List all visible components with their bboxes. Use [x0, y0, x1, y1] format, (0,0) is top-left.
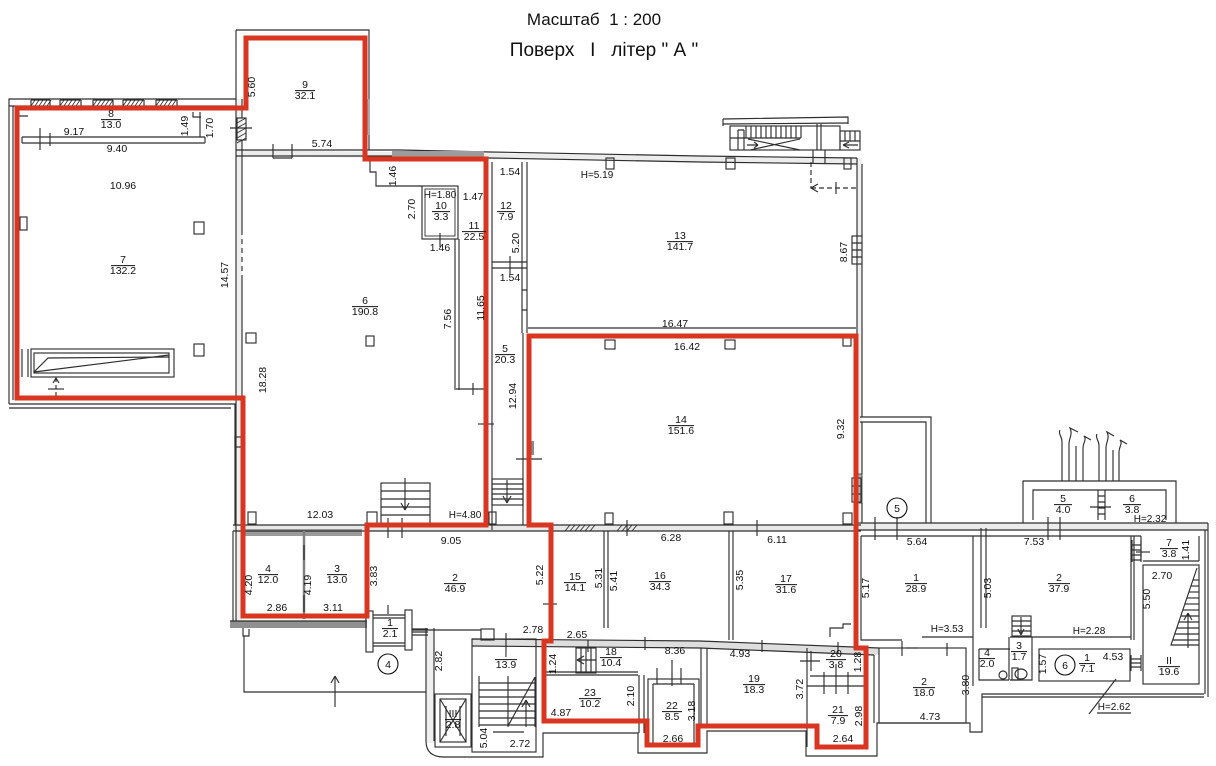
svg-text:13.9: 13.9	[496, 659, 517, 671]
svg-text:H=2.32: H=2.32	[1134, 514, 1167, 525]
svg-text:H=3.53: H=3.53	[931, 624, 964, 635]
svg-text:7.9: 7.9	[499, 211, 514, 223]
svg-text:46.9: 46.9	[445, 583, 466, 595]
svg-text:2.64: 2.64	[833, 733, 854, 745]
svg-text:21: 21	[832, 704, 844, 716]
svg-text:7.56: 7.56	[442, 309, 454, 330]
svg-text:6.11: 6.11	[767, 534, 787, 546]
svg-text:3: 3	[334, 563, 340, 575]
svg-text:II: II	[1166, 655, 1172, 667]
svg-text:5: 5	[1060, 493, 1066, 505]
svg-text:5.41: 5.41	[608, 571, 620, 592]
svg-text:9: 9	[302, 79, 308, 91]
svg-text:2.0: 2.0	[980, 658, 995, 670]
svg-text:2.70: 2.70	[1152, 570, 1173, 582]
svg-text:18.0: 18.0	[914, 687, 935, 699]
svg-text:H=5.19: H=5.19	[581, 170, 614, 181]
svg-text:5.60: 5.60	[246, 77, 258, 98]
svg-text:14.1: 14.1	[565, 582, 586, 594]
svg-text:141.7: 141.7	[667, 241, 693, 253]
svg-text:1.54: 1.54	[500, 272, 521, 284]
svg-text:9.40: 9.40	[107, 143, 128, 155]
svg-text:16.42: 16.42	[674, 341, 700, 353]
svg-text:2.1: 2.1	[383, 628, 398, 640]
svg-text:4: 4	[265, 563, 271, 575]
svg-text:32.1: 32.1	[295, 90, 316, 102]
svg-text:28.9: 28.9	[906, 583, 927, 595]
svg-text:19: 19	[748, 673, 760, 685]
svg-text:6: 6	[1129, 493, 1135, 505]
svg-text:5: 5	[502, 343, 508, 355]
svg-text:4.53: 4.53	[1103, 651, 1124, 663]
svg-text:3.11: 3.11	[323, 602, 343, 614]
svg-text:10.4: 10.4	[601, 657, 622, 669]
svg-text:5.22: 5.22	[534, 565, 546, 586]
svg-text:18.3: 18.3	[744, 684, 765, 696]
svg-text:3.8: 3.8	[1162, 548, 1177, 560]
svg-text:1.41: 1.41	[1180, 540, 1192, 561]
svg-text:3.3: 3.3	[434, 211, 449, 223]
svg-text:14: 14	[675, 414, 687, 426]
svg-text:2.65: 2.65	[567, 629, 588, 641]
svg-text:12.03: 12.03	[307, 509, 333, 521]
svg-text:H=2.28: H=2.28	[1073, 626, 1106, 637]
svg-text:190.8: 190.8	[352, 306, 378, 318]
svg-text:3.80: 3.80	[960, 675, 972, 696]
svg-text:4.73: 4.73	[920, 711, 941, 723]
svg-text:8.5: 8.5	[665, 711, 680, 723]
svg-text:11.65: 11.65	[475, 295, 487, 321]
svg-text:1.28: 1.28	[852, 652, 864, 673]
svg-text:2.10: 2.10	[625, 686, 637, 707]
svg-text:31.6: 31.6	[776, 584, 797, 596]
svg-text:2.66: 2.66	[663, 733, 684, 745]
svg-text:6: 6	[1062, 660, 1068, 672]
svg-text:2.78: 2.78	[523, 624, 544, 636]
svg-text:9.05: 9.05	[441, 535, 462, 547]
svg-text:2.86: 2.86	[267, 602, 288, 614]
svg-text:1.57: 1.57	[1037, 654, 1049, 675]
svg-text:6: 6	[362, 295, 368, 307]
svg-text:17: 17	[780, 573, 792, 585]
svg-text:1: 1	[913, 572, 919, 584]
svg-text:9.32: 9.32	[835, 419, 847, 440]
svg-text:1.49: 1.49	[179, 116, 191, 137]
svg-text:20.3: 20.3	[495, 354, 516, 366]
svg-text:2.98: 2.98	[853, 706, 865, 727]
svg-text:23: 23	[584, 687, 596, 699]
svg-text:2: 2	[1056, 572, 1062, 584]
svg-text:2.72: 2.72	[510, 738, 531, 750]
svg-text:Масштаб 1 : 200: Масштаб 1 : 200	[527, 10, 661, 29]
svg-text:2.8: 2.8	[446, 719, 461, 731]
svg-text:1.46: 1.46	[430, 242, 451, 254]
svg-text:1.24: 1.24	[547, 654, 559, 675]
svg-text:1: 1	[1084, 652, 1090, 664]
svg-text:8.36: 8.36	[665, 645, 686, 657]
svg-text:37.9: 37.9	[1049, 583, 1070, 595]
svg-text:6.28: 6.28	[661, 532, 682, 544]
svg-text:3.72: 3.72	[794, 679, 806, 700]
svg-text:4.0: 4.0	[1056, 504, 1071, 516]
svg-text:8.67: 8.67	[838, 242, 850, 263]
svg-text:5.17: 5.17	[860, 578, 872, 599]
svg-text:5.31: 5.31	[593, 568, 605, 589]
svg-text:1: 1	[387, 617, 393, 629]
svg-text:1.7: 1.7	[1012, 651, 1027, 663]
svg-text:H=4.80: H=4.80	[449, 510, 482, 521]
svg-text:I: I	[505, 648, 508, 660]
svg-text:14.57: 14.57	[219, 262, 231, 288]
svg-text:4.87: 4.87	[551, 707, 572, 719]
svg-text:7.53: 7.53	[1024, 536, 1045, 548]
svg-text:22: 22	[666, 700, 678, 712]
svg-text:2: 2	[921, 676, 927, 688]
svg-text:4.93: 4.93	[730, 648, 751, 660]
svg-text:18: 18	[605, 646, 617, 658]
svg-text:13.0: 13.0	[101, 119, 122, 131]
svg-text:12.0: 12.0	[258, 574, 279, 586]
svg-text:12: 12	[500, 200, 512, 212]
svg-text:5.20: 5.20	[510, 233, 522, 254]
svg-text:132.2: 132.2	[110, 265, 136, 277]
svg-text:15: 15	[569, 571, 581, 583]
svg-text:III: III	[449, 708, 458, 720]
svg-text:5.04: 5.04	[478, 728, 490, 749]
svg-text:5.35: 5.35	[734, 570, 746, 591]
svg-text:18.28: 18.28	[257, 367, 269, 393]
svg-text:7: 7	[1166, 537, 1172, 549]
svg-text:10.96: 10.96	[110, 180, 136, 192]
svg-text:3.18: 3.18	[686, 701, 698, 722]
svg-text:1.47: 1.47	[463, 191, 484, 203]
svg-text:3.83: 3.83	[368, 566, 380, 587]
svg-text:13.0: 13.0	[327, 574, 348, 586]
svg-text:5: 5	[894, 503, 900, 515]
svg-text:34.3: 34.3	[650, 581, 671, 593]
svg-text:Поверх І літер " А ": Поверх І літер " А "	[510, 40, 698, 61]
svg-text:16: 16	[654, 570, 666, 582]
svg-text:20: 20	[830, 648, 842, 660]
svg-text:5.64: 5.64	[907, 536, 928, 548]
svg-text:16.47: 16.47	[662, 318, 688, 330]
svg-text:10.2: 10.2	[580, 698, 601, 710]
svg-text:5.03: 5.03	[982, 578, 994, 599]
svg-text:H=2.62: H=2.62	[1098, 702, 1131, 713]
svg-text:151.6: 151.6	[668, 425, 694, 437]
svg-text:22.5: 22.5	[464, 231, 485, 243]
svg-text:2.70: 2.70	[406, 199, 418, 220]
svg-text:1.46: 1.46	[387, 166, 399, 187]
svg-text:4.19: 4.19	[302, 575, 314, 596]
svg-text:4: 4	[385, 659, 391, 671]
svg-text:9.17: 9.17	[64, 126, 85, 138]
svg-text:1.54: 1.54	[500, 166, 521, 178]
svg-text:5.50: 5.50	[1141, 589, 1153, 610]
svg-text:5.74: 5.74	[312, 138, 333, 150]
svg-text:12.94: 12.94	[507, 383, 519, 409]
svg-text:1.70: 1.70	[204, 118, 216, 139]
svg-text:13: 13	[674, 230, 686, 242]
svg-text:10: 10	[435, 200, 447, 212]
svg-text:3: 3	[1016, 640, 1022, 652]
svg-text:8: 8	[108, 108, 114, 120]
svg-text:4: 4	[984, 647, 990, 659]
svg-text:4.20: 4.20	[243, 575, 255, 596]
svg-text:7.9: 7.9	[831, 715, 846, 727]
svg-text:11: 11	[469, 220, 480, 232]
svg-text:7: 7	[120, 254, 126, 266]
svg-text:3.8: 3.8	[829, 659, 844, 671]
svg-text:2.82: 2.82	[433, 651, 445, 672]
svg-text:7.1: 7.1	[1080, 663, 1095, 675]
svg-text:2: 2	[452, 572, 458, 584]
svg-text:19.6: 19.6	[1159, 666, 1180, 678]
